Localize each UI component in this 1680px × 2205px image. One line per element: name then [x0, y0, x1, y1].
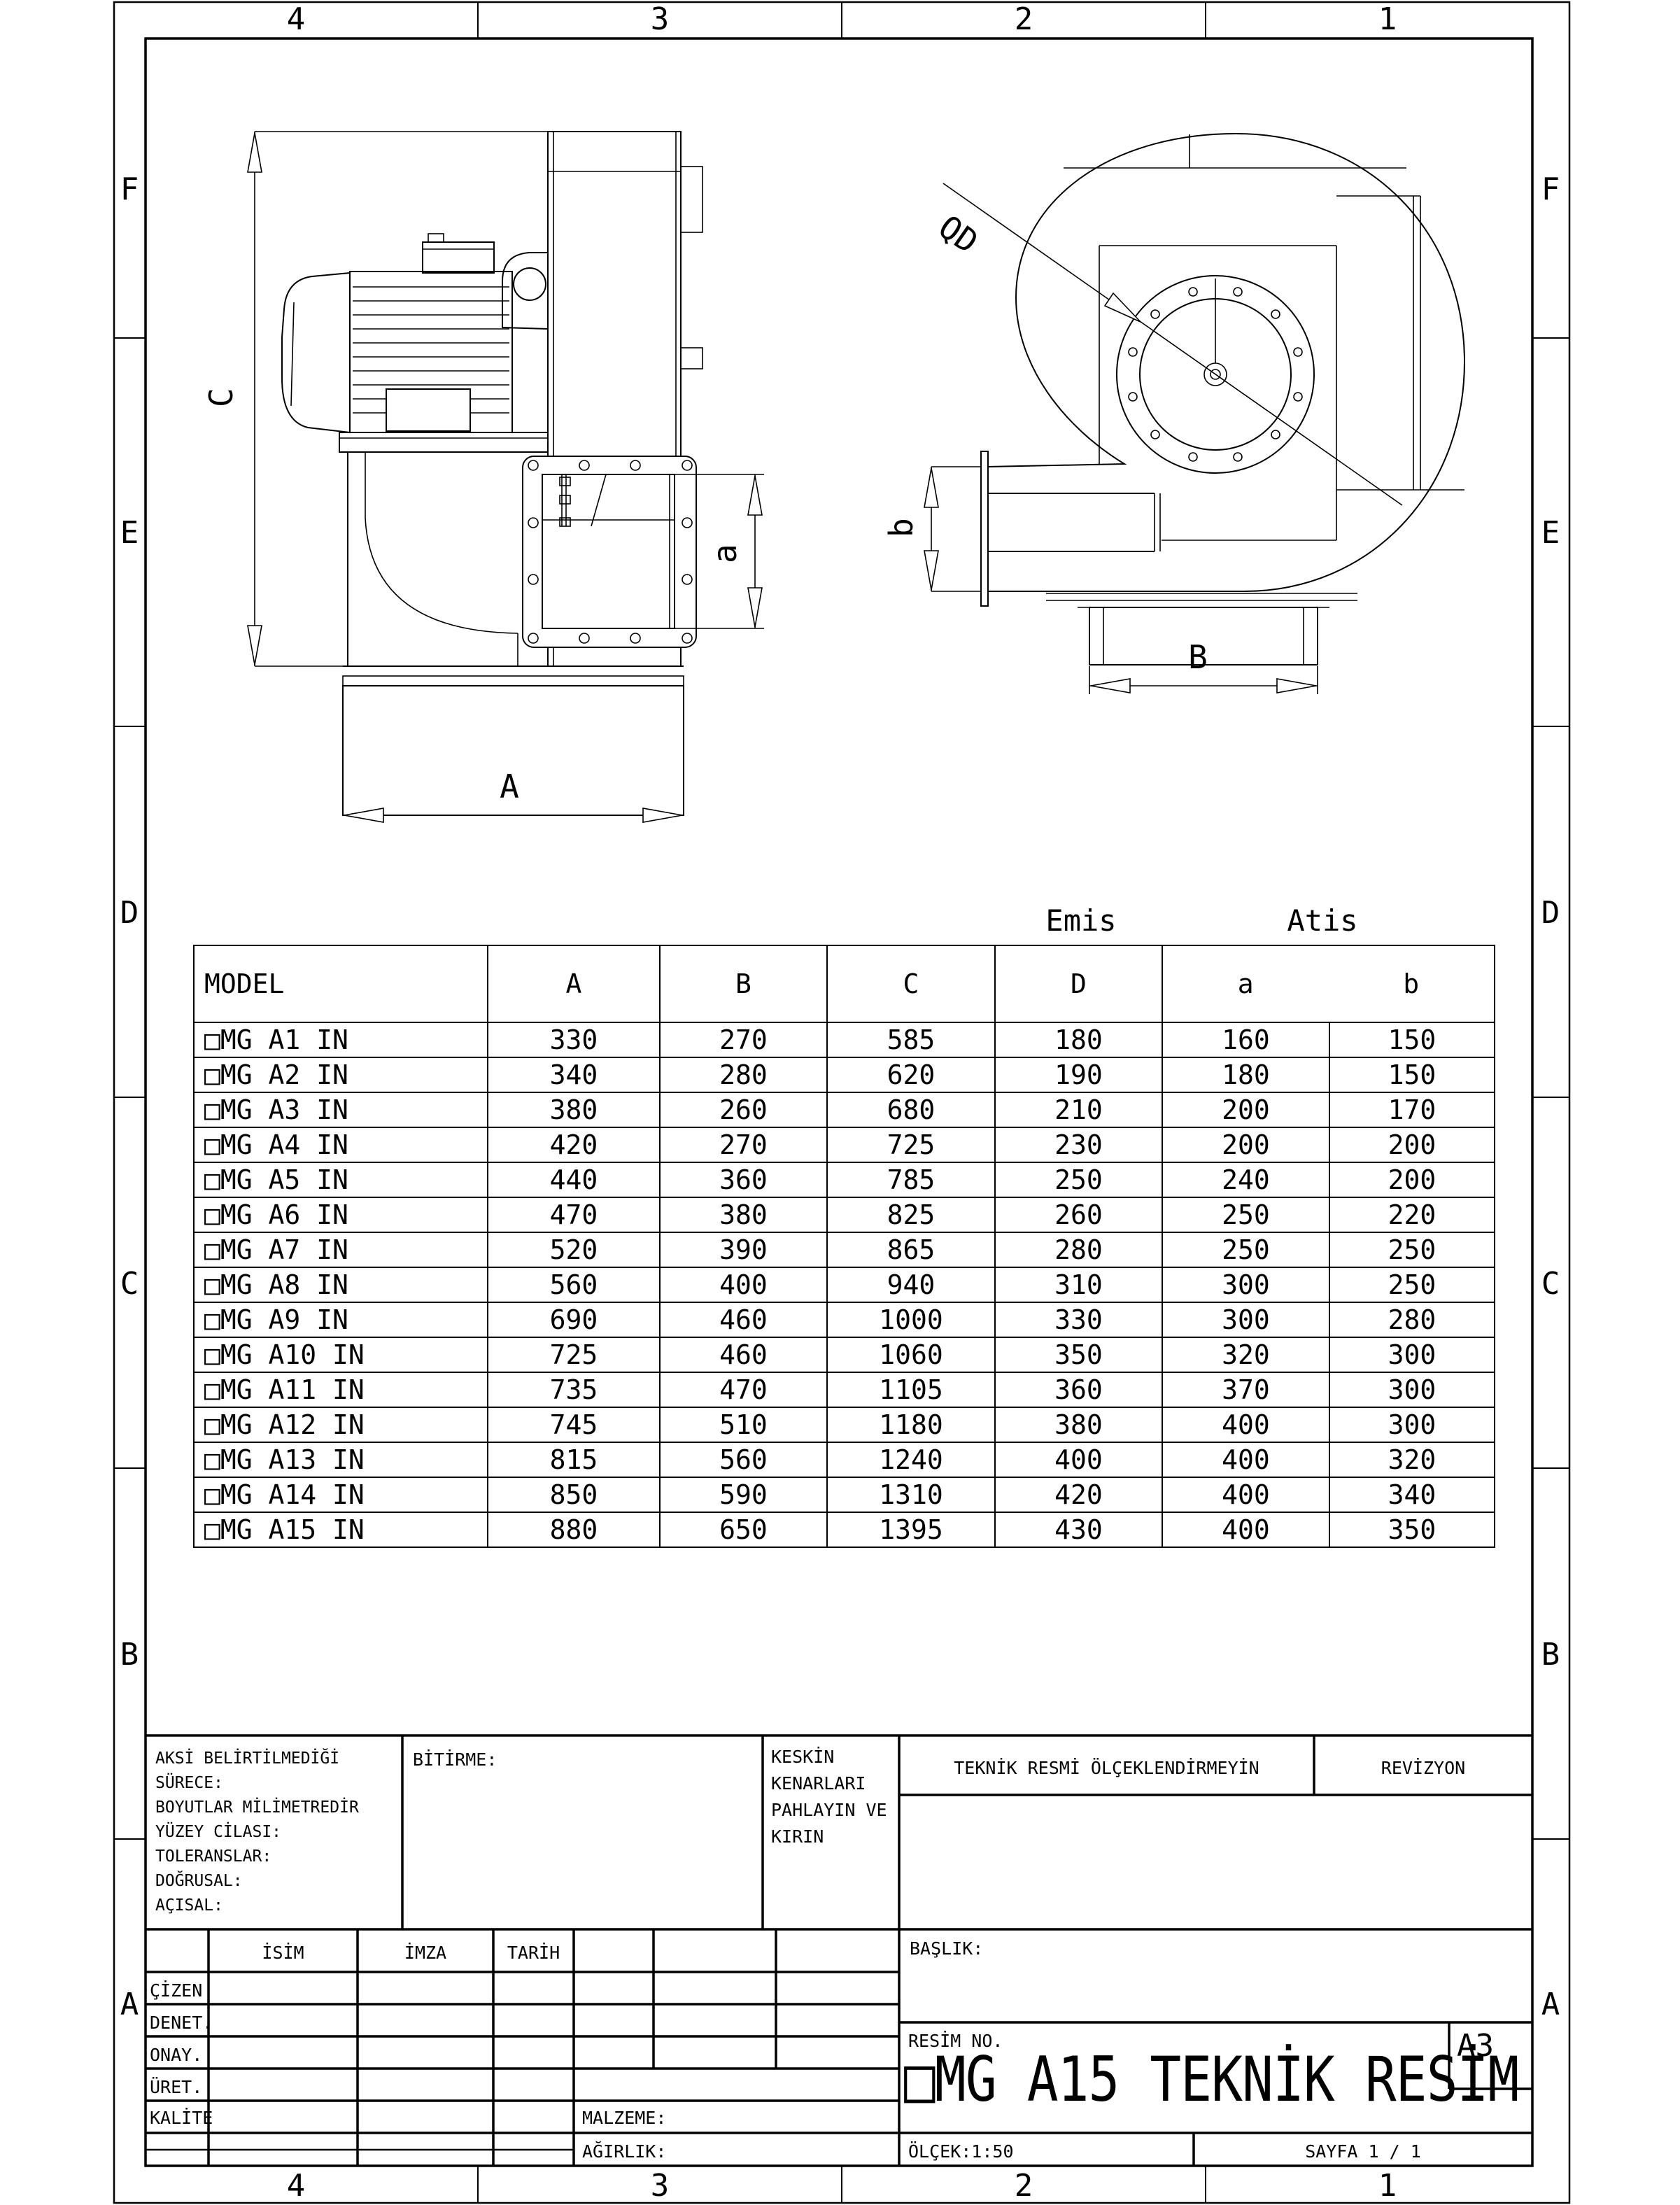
value-cell: 1000 — [827, 1302, 995, 1337]
dim-b-outlet-label: b — [882, 518, 920, 537]
value-cell: 460 — [660, 1337, 827, 1372]
model-cell: □MG A11 IN — [194, 1372, 488, 1407]
model-cell: □MG A8 IN — [194, 1267, 488, 1302]
value-cell: 400 — [995, 1442, 1162, 1477]
electric-motor — [282, 234, 512, 432]
zone-bottom-1: 1 — [1378, 2168, 1397, 2204]
value-cell: 190 — [995, 1057, 1162, 1092]
value-cell: 200 — [1162, 1092, 1329, 1127]
zone-top-3: 3 — [651, 1, 670, 37]
model-cell: □MG A3 IN — [194, 1092, 488, 1127]
value-cell: 400 — [1162, 1477, 1329, 1512]
value-cell: 560 — [660, 1442, 827, 1477]
zone-left-e: E — [120, 515, 139, 551]
zone-right-c: C — [1541, 1266, 1560, 1302]
value-cell: 400 — [1162, 1442, 1329, 1477]
table-row: □MG A3 IN380260680210200170 — [194, 1092, 1495, 1127]
dim-a-outlet-label: a — [706, 544, 744, 563]
dim-b-width: B — [1089, 638, 1318, 694]
value-cell: 725 — [827, 1127, 995, 1162]
col-header-outlet-a: a — [1163, 968, 1329, 999]
col-header-a: A — [488, 945, 660, 1022]
value-cell: 1180 — [827, 1407, 995, 1442]
value-cell: 280 — [660, 1057, 827, 1092]
zone-top-2: 2 — [1015, 1, 1033, 37]
value-cell: 1310 — [827, 1477, 995, 1512]
table-row: □MG A12 IN7455101180380400300 — [194, 1407, 1495, 1442]
value-cell: 350 — [1329, 1512, 1495, 1547]
value-cell: 880 — [488, 1512, 660, 1547]
col-header-ab: a b — [1162, 945, 1495, 1022]
value-cell: 380 — [488, 1092, 660, 1127]
value-cell: 460 — [660, 1302, 827, 1337]
value-cell: 280 — [995, 1232, 1162, 1267]
dim-b-outlet: b — [882, 467, 981, 591]
value-cell: 150 — [1329, 1022, 1495, 1057]
value-cell: 300 — [1329, 1407, 1495, 1442]
table-row: □MG A14 IN8505901310420400340 — [194, 1477, 1495, 1512]
value-cell: 340 — [488, 1057, 660, 1092]
dim-a-length: A — [343, 768, 684, 822]
value-cell: 300 — [1162, 1267, 1329, 1302]
zone-bottom-3: 3 — [651, 2168, 670, 2204]
value-cell: 590 — [660, 1477, 827, 1512]
outlet-duct — [981, 451, 1160, 606]
col-header-model: MODEL — [194, 945, 488, 1022]
do-not-scale-note: TEKNİK RESMİ ÖLÇEKLENDİRMEYİN — [899, 1755, 1314, 1782]
value-cell: 430 — [995, 1512, 1162, 1547]
zone-right-a: A — [1541, 1987, 1560, 2022]
table-group-atis: Atis — [1287, 903, 1357, 938]
value-cell: 420 — [488, 1127, 660, 1162]
value-cell: 250 — [1162, 1232, 1329, 1267]
value-cell: 200 — [1329, 1162, 1495, 1197]
finish-label: BİTİRME: — [413, 1747, 497, 1773]
dim-qd: QD — [932, 183, 1402, 505]
value-cell: 380 — [995, 1407, 1162, 1442]
model-cell: □MG A9 IN — [194, 1302, 488, 1337]
zone-bottom-2: 2 — [1015, 2168, 1033, 2204]
value-cell: 260 — [660, 1092, 827, 1127]
value-cell: 865 — [827, 1232, 995, 1267]
volute-scroll — [987, 134, 1464, 591]
model-cell: □MG A7 IN — [194, 1232, 488, 1267]
zone-top-1: 1 — [1378, 1, 1397, 37]
value-cell: 1105 — [827, 1372, 995, 1407]
model-cell: □MG A12 IN — [194, 1407, 488, 1442]
col-header-outlet-b: b — [1329, 968, 1495, 999]
value-cell: 370 — [1162, 1372, 1329, 1407]
value-cell: 470 — [660, 1372, 827, 1407]
value-cell: 170 — [1329, 1092, 1495, 1127]
table-header-row: MODEL A B C D a b — [194, 945, 1495, 1022]
table-row: □MG A2 IN340280620190180150 — [194, 1057, 1495, 1092]
value-cell: 270 — [660, 1127, 827, 1162]
table-row: □MG A5 IN440360785250240200 — [194, 1162, 1495, 1197]
dim-c-label: C — [202, 388, 240, 407]
value-cell: 250 — [1162, 1197, 1329, 1232]
row-label-production: ÜRET. — [150, 2074, 202, 2101]
value-cell: 330 — [488, 1022, 660, 1057]
model-cell: □MG A13 IN — [194, 1442, 488, 1477]
value-cell: 420 — [995, 1477, 1162, 1512]
value-cell: 400 — [1162, 1407, 1329, 1442]
row-label-quality: KALİTE — [150, 2105, 213, 2132]
value-cell: 240 — [1162, 1162, 1329, 1197]
model-cell: □MG A6 IN — [194, 1197, 488, 1232]
value-cell: 1240 — [827, 1442, 995, 1477]
value-cell: 300 — [1329, 1337, 1495, 1372]
value-cell: 680 — [827, 1092, 995, 1127]
date-col-header: TARİH — [493, 1940, 574, 1966]
zone-right-f: F — [1541, 171, 1560, 207]
dimension-table: MODEL A B C D a b □MG A1 IN3302705851801… — [193, 945, 1495, 1548]
zone-left-b: B — [120, 1637, 139, 1672]
sharp-edges-note: KESKİN KENARLARI PAHLAYIN VE KIRIN — [771, 1744, 897, 1850]
value-cell: 310 — [995, 1267, 1162, 1302]
value-cell: 620 — [827, 1057, 995, 1092]
revision-label: REVİZYON — [1314, 1755, 1532, 1782]
value-cell: 250 — [1329, 1232, 1495, 1267]
dim-qd-label: QD — [932, 208, 985, 261]
value-cell: 300 — [1162, 1302, 1329, 1337]
value-cell: 230 — [995, 1127, 1162, 1162]
table-row: □MG A1 IN330270585180160150 — [194, 1022, 1495, 1057]
value-cell: 400 — [1162, 1512, 1329, 1547]
paper-size-label: A3 — [1457, 2028, 1494, 2064]
table-row: □MG A8 IN560400940310300250 — [194, 1267, 1495, 1302]
value-cell: 380 — [660, 1197, 827, 1232]
table-row: □MG A15 IN8806501395430400350 — [194, 1512, 1495, 1547]
col-header-d: D — [995, 945, 1162, 1022]
value-cell: 360 — [660, 1162, 827, 1197]
zone-bottom-4: 4 — [287, 2168, 306, 2204]
drawing-sheet: 4 3 2 1 4 3 2 1 F E D C B A F E D C B A — [0, 0, 1680, 2205]
name-col-header: İSİM — [209, 1940, 358, 1966]
table-row: □MG A9 IN6904601000330300280 — [194, 1302, 1495, 1337]
value-cell: 440 — [488, 1162, 660, 1197]
zone-left-f: F — [120, 171, 139, 207]
row-label-checked: DENET. — [150, 2010, 213, 2036]
side-view: C A a — [202, 132, 764, 822]
zone-right-b: B — [1541, 1637, 1560, 1672]
value-cell: 560 — [488, 1267, 660, 1302]
value-cell: 200 — [1329, 1127, 1495, 1162]
scale-label: ÖLÇEK:1:50 — [908, 2139, 1014, 2165]
model-cell: □MG A2 IN — [194, 1057, 488, 1092]
signature-col-header: İMZA — [358, 1940, 493, 1966]
value-cell: 160 — [1162, 1022, 1329, 1057]
table-row: □MG A7 IN520390865280250250 — [194, 1232, 1495, 1267]
value-cell: 510 — [660, 1407, 827, 1442]
model-cell: □MG A4 IN — [194, 1127, 488, 1162]
model-cell: □MG A14 IN — [194, 1477, 488, 1512]
row-label-drawn: ÇİZEN — [150, 1978, 202, 2004]
outlet-flange-square — [523, 456, 696, 647]
value-cell: 520 — [488, 1232, 660, 1267]
table-group-emis: Emis — [1045, 903, 1116, 938]
value-cell: 815 — [488, 1442, 660, 1477]
value-cell: 690 — [488, 1302, 660, 1337]
title-label: BAŞLIK: — [910, 1936, 983, 1962]
table-row: □MG A13 IN8155601240400400320 — [194, 1442, 1495, 1477]
model-cell: □MG A15 IN — [194, 1512, 488, 1547]
zone-left-a: A — [120, 1987, 139, 2022]
model-cell: □MG A10 IN — [194, 1337, 488, 1372]
dim-b-width-label: B — [1188, 638, 1208, 676]
value-cell: 825 — [827, 1197, 995, 1232]
model-cell: □MG A5 IN — [194, 1162, 488, 1197]
value-cell: 180 — [1162, 1057, 1329, 1092]
value-cell: 360 — [995, 1372, 1162, 1407]
table-row: □MG A10 IN7254601060350320300 — [194, 1337, 1495, 1372]
value-cell: 250 — [1329, 1267, 1495, 1302]
value-cell: 210 — [995, 1092, 1162, 1127]
row-label-approved: ONAY. — [150, 2042, 202, 2069]
col-header-c: C — [827, 945, 995, 1022]
zone-right-e: E — [1541, 515, 1560, 551]
value-cell: 330 — [995, 1302, 1162, 1337]
table-row: □MG A6 IN470380825260250220 — [194, 1197, 1495, 1232]
value-cell: 180 — [995, 1022, 1162, 1057]
value-cell: 350 — [995, 1337, 1162, 1372]
value-cell: 850 — [488, 1477, 660, 1512]
value-cell: 585 — [827, 1022, 995, 1057]
value-cell: 340 — [1329, 1477, 1495, 1512]
value-cell: 280 — [1329, 1302, 1495, 1337]
zone-left-c: C — [120, 1266, 139, 1302]
material-label: MALZEME: — [582, 2105, 666, 2132]
value-cell: 270 — [660, 1022, 827, 1057]
motor-bracket-lug — [502, 253, 548, 329]
value-cell: 1395 — [827, 1512, 995, 1547]
value-cell: 940 — [827, 1267, 995, 1302]
value-cell: 300 — [1329, 1372, 1495, 1407]
value-cell: 725 — [488, 1337, 660, 1372]
model-cell: □MG A1 IN — [194, 1022, 488, 1057]
tolerances-notes: AKSİ BELİRTİLMEDİĞİ SÜRECE: BOYUTLAR MİL… — [155, 1747, 397, 1918]
value-cell: 650 — [660, 1512, 827, 1547]
table-row: □MG A11 IN7354701105360370300 — [194, 1372, 1495, 1407]
zone-right-d: D — [1541, 895, 1560, 931]
value-cell: 320 — [1162, 1337, 1329, 1372]
value-cell: 1060 — [827, 1337, 995, 1372]
table-row: □MG A4 IN420270725230200200 — [194, 1127, 1495, 1162]
drawing-title: □MG A15 TEKNİK RESİM — [904, 2049, 1518, 2111]
sheet-number-label: SAYFA 1 / 1 — [1194, 2139, 1532, 2165]
value-cell: 735 — [488, 1372, 660, 1407]
value-cell: 470 — [488, 1197, 660, 1232]
weight-label: AĞIRLIK: — [582, 2139, 666, 2165]
value-cell: 390 — [660, 1232, 827, 1267]
value-cell: 260 — [995, 1197, 1162, 1232]
terminal-box — [423, 242, 494, 273]
value-cell: 150 — [1329, 1057, 1495, 1092]
dim-a-length-label: A — [500, 768, 519, 805]
col-header-b: B — [660, 945, 827, 1022]
value-cell: 785 — [827, 1162, 995, 1197]
zone-top-4: 4 — [287, 1, 306, 37]
value-cell: 745 — [488, 1407, 660, 1442]
value-cell: 250 — [995, 1162, 1162, 1197]
value-cell: 220 — [1329, 1197, 1495, 1232]
value-cell: 400 — [660, 1267, 827, 1302]
front-view: QD b B — [882, 134, 1464, 694]
value-cell: 320 — [1329, 1442, 1495, 1477]
zone-left-d: D — [120, 895, 139, 931]
value-cell: 200 — [1162, 1127, 1329, 1162]
